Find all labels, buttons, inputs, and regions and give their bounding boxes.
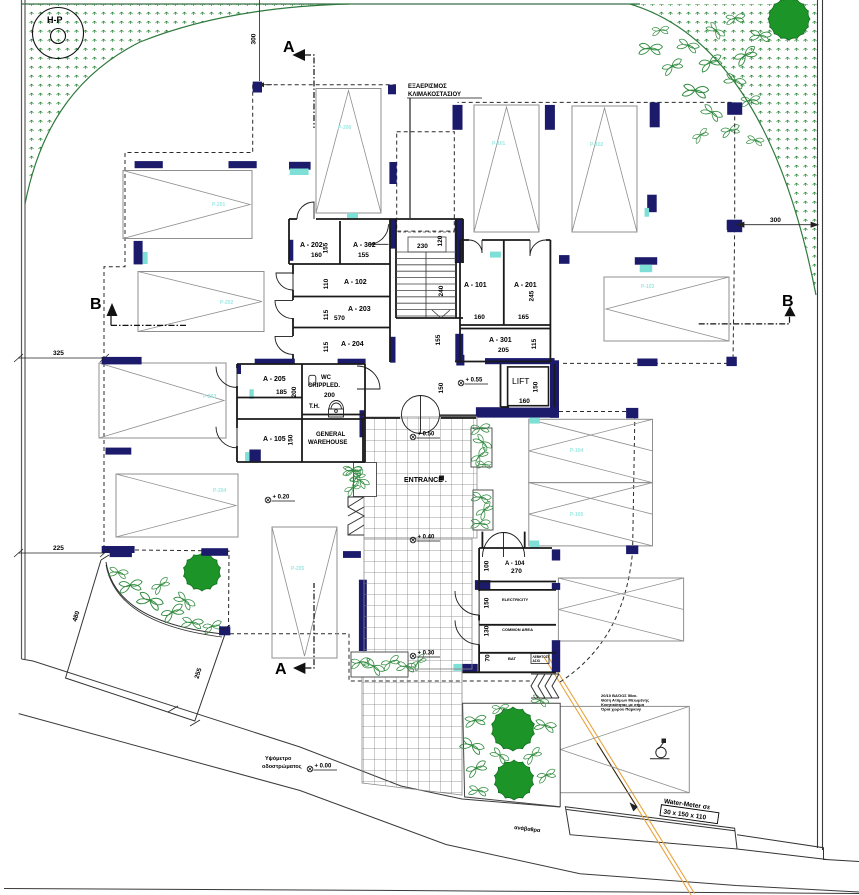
svg-text:200: 200 [291, 386, 298, 397]
svg-text:P-104: P-104 [570, 448, 584, 454]
svg-text:A - 205: A - 205 [263, 376, 286, 383]
svg-text:300: 300 [251, 33, 258, 44]
svg-text:150: 150 [288, 434, 295, 445]
svg-text:155: 155 [358, 252, 369, 259]
svg-text:A: A [275, 661, 287, 678]
svg-text:Όρια χώρου Παρκινγ: Όρια χώρου Παρκινγ [600, 707, 642, 712]
svg-text:A - 201: A - 201 [514, 282, 537, 289]
svg-text:150: 150 [438, 382, 445, 393]
svg-text:115: 115 [531, 338, 538, 349]
svg-text:BAT: BAT [508, 656, 516, 661]
svg-text:CRIPPLED.: CRIPPLED. [308, 383, 340, 389]
svg-text:A - 301: A - 301 [489, 337, 512, 344]
svg-text:155: 155 [323, 242, 330, 253]
svg-text:+ 0.20: + 0.20 [273, 495, 291, 501]
svg-text:A - 102: A - 102 [344, 279, 367, 286]
svg-text:A - 104: A - 104 [505, 561, 525, 567]
svg-text:A - 203: A - 203 [348, 306, 371, 313]
svg-text:100: 100 [484, 560, 491, 571]
svg-text:A - 105: A - 105 [263, 436, 286, 443]
svg-text:150: 150 [484, 597, 491, 608]
svg-text:P-105: P-105 [570, 512, 584, 518]
svg-text:ΕΞΑΕΡΙΣΜΟΣ: ΕΞΑΕΡΙΣΜΟΣ [408, 84, 447, 90]
svg-text:115: 115 [323, 309, 330, 320]
svg-text:WC: WC [321, 375, 332, 381]
svg-text:T.H.: T.H. [309, 404, 320, 410]
svg-text:230: 230 [417, 243, 428, 250]
svg-text:P-103: P-103 [641, 284, 655, 290]
svg-text:P-206: P-206 [338, 125, 352, 131]
svg-text:205: 205 [498, 347, 509, 354]
svg-text:A - 302: A - 302 [353, 242, 376, 249]
svg-text:P-102: P-102 [590, 142, 604, 148]
svg-text:A - 202: A - 202 [300, 242, 323, 249]
svg-text:A - 204: A - 204 [341, 341, 364, 348]
svg-text:B: B [90, 296, 102, 313]
svg-text:ΚΛΙΜΑΚΟΣΤΑΣΙΟΥ: ΚΛΙΜΑΚΟΣΤΑΣΙΟΥ [408, 92, 461, 98]
svg-text:P-204: P-204 [213, 488, 227, 494]
svg-text:P-201: P-201 [212, 202, 226, 208]
svg-text:P-203: P-203 [203, 394, 217, 400]
svg-text:225: 225 [53, 545, 64, 552]
svg-text:160: 160 [311, 252, 322, 259]
svg-text:165: 165 [518, 314, 529, 321]
svg-text:70: 70 [485, 654, 492, 662]
svg-text:+ 0.55: + 0.55 [466, 378, 484, 384]
svg-text:+ 0.50: + 0.50 [418, 432, 436, 438]
svg-text:P-101: P-101 [492, 141, 506, 147]
svg-text:325: 325 [53, 350, 64, 357]
svg-text:270: 270 [511, 568, 522, 575]
svg-text:B: B [782, 293, 794, 310]
svg-text:COMMON AREA: COMMON AREA [502, 627, 533, 632]
svg-text:+ 0.30: + 0.30 [418, 651, 436, 657]
svg-text:120: 120 [437, 235, 444, 246]
svg-text:ENTRANCE .: ENTRANCE . [404, 477, 447, 484]
svg-text:P-205: P-205 [291, 566, 305, 572]
svg-text:Υψόμετρο: Υψόμετρο [265, 756, 292, 762]
svg-text:GENERAL: GENERAL [316, 432, 346, 438]
svg-text:110: 110 [323, 278, 330, 289]
svg-text:ELECTRICITY: ELECTRICITY [502, 597, 529, 602]
svg-text:ΑΣΙΟ: ΑΣΙΟ [533, 659, 541, 663]
svg-text:LIFT: LIFT [512, 376, 529, 386]
svg-text:οδοστρώματος: οδοστρώματος [262, 764, 302, 770]
svg-text:130: 130 [484, 625, 491, 636]
svg-text:H-P: H-P [47, 15, 63, 25]
svg-text:+ 0.40: + 0.40 [418, 535, 436, 541]
svg-text:200: 200 [324, 392, 335, 399]
svg-text:245: 245 [529, 290, 536, 301]
svg-text:300: 300 [770, 217, 781, 224]
svg-text:160: 160 [474, 314, 485, 321]
svg-text:WAREHOUSE: WAREHOUSE [308, 440, 347, 446]
svg-text:570: 570 [334, 315, 345, 322]
svg-text:240: 240 [438, 285, 445, 296]
svg-text:A: A [283, 39, 295, 56]
svg-text:160: 160 [519, 398, 530, 405]
svg-text:A - 101: A - 101 [464, 282, 487, 289]
svg-text:185: 185 [276, 389, 287, 396]
svg-text:150: 150 [533, 381, 540, 392]
svg-text:155: 155 [435, 334, 442, 345]
svg-text:115: 115 [323, 341, 330, 352]
svg-text:+ 0.00: + 0.00 [315, 764, 333, 770]
svg-text:P-202: P-202 [220, 300, 234, 306]
